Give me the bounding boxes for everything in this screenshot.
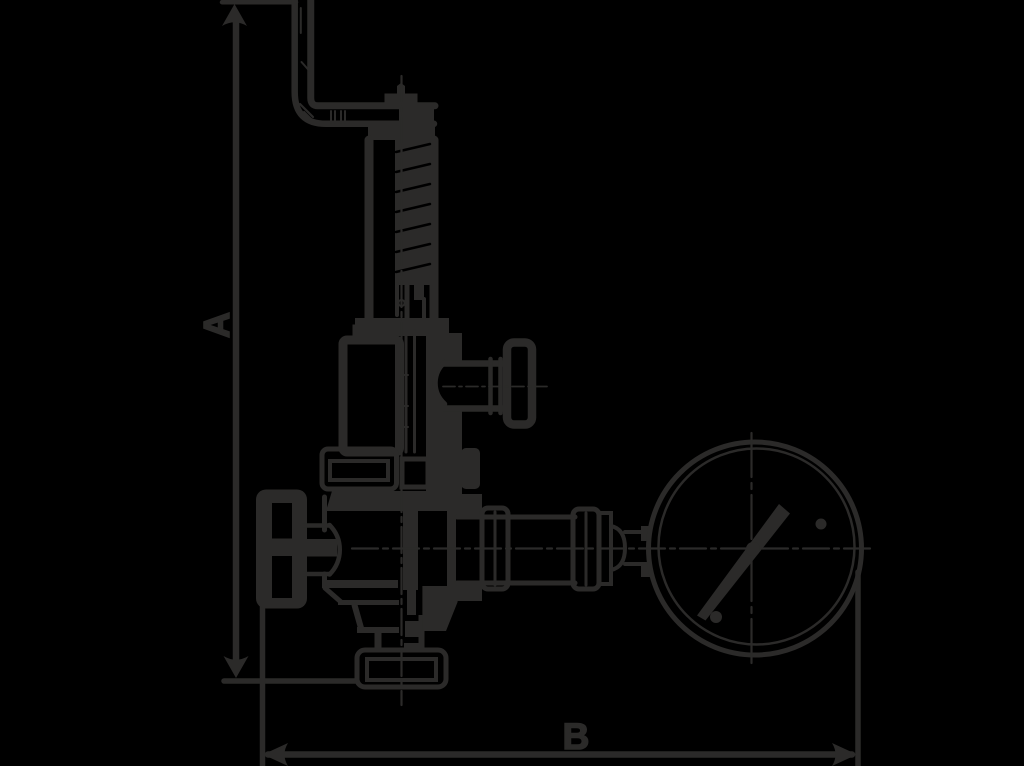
svg-text:B: B: [563, 716, 590, 757]
svg-text:A: A: [196, 312, 237, 338]
